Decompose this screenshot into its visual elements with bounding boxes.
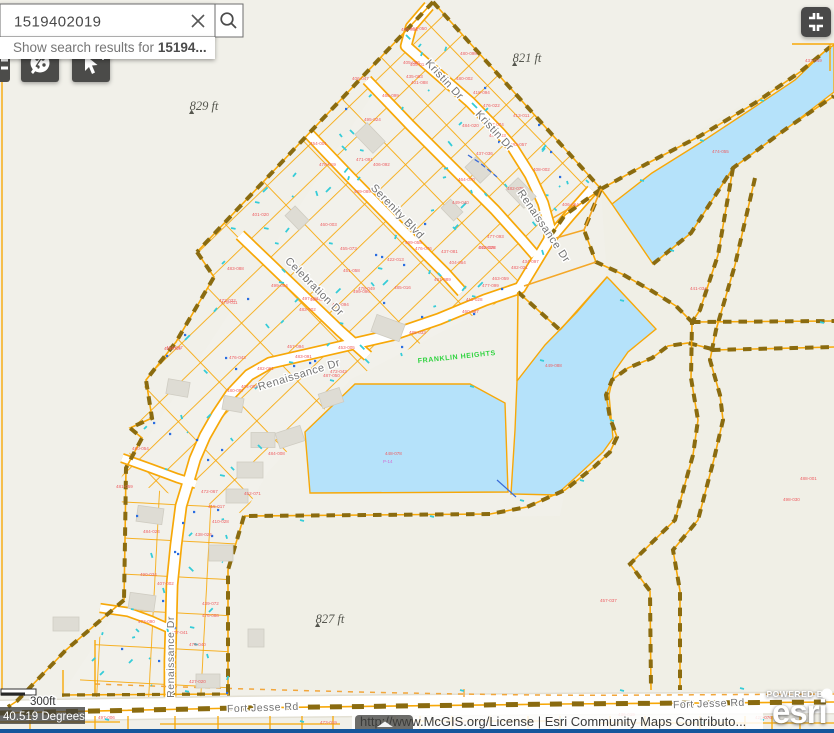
svg-text:406-092: 406-092 bbox=[373, 162, 390, 167]
svg-text:P-14: P-14 bbox=[383, 459, 393, 464]
svg-text:406-064: 406-064 bbox=[562, 202, 579, 207]
svg-text:827 ft: 827 ft bbox=[316, 612, 345, 626]
svg-text:449-040: 449-040 bbox=[452, 200, 469, 205]
svg-text:460-003: 460-003 bbox=[320, 222, 337, 227]
svg-text:474-055: 474-055 bbox=[712, 149, 729, 154]
svg-text:485-016: 485-016 bbox=[394, 285, 411, 290]
svg-text:404-054: 404-054 bbox=[449, 260, 466, 265]
svg-text:418-094: 418-094 bbox=[473, 90, 490, 95]
svg-text:437-081: 437-081 bbox=[441, 249, 458, 254]
svg-text:Fort Jesse Rd: Fort Jesse Rd bbox=[227, 701, 299, 716]
svg-text:451-058: 451-058 bbox=[343, 268, 360, 273]
svg-text:453-005: 453-005 bbox=[338, 345, 355, 350]
svg-text:476-040: 476-040 bbox=[189, 642, 206, 647]
svg-text:481-059: 481-059 bbox=[116, 484, 133, 489]
svg-text:404-002: 404-002 bbox=[241, 384, 258, 389]
svg-text:455-073: 455-073 bbox=[340, 246, 357, 251]
svg-text:477-093: 477-093 bbox=[487, 234, 504, 239]
svg-text:401-020: 401-020 bbox=[252, 212, 269, 217]
svg-text:472-067: 472-067 bbox=[201, 489, 218, 494]
svg-text:300ft: 300ft bbox=[30, 696, 56, 708]
svg-text:Renaissance Dr: Renaissance Dr bbox=[165, 616, 177, 698]
svg-text:484-008: 484-008 bbox=[268, 451, 285, 456]
svg-text:488-001: 488-001 bbox=[800, 476, 817, 481]
svg-text:476-088: 476-088 bbox=[202, 613, 219, 618]
svg-text:460-099: 460-099 bbox=[382, 93, 399, 98]
svg-text:463-059: 463-059 bbox=[492, 276, 509, 281]
svg-text:435-093: 435-093 bbox=[406, 74, 423, 79]
svg-text:483-088: 483-088 bbox=[227, 266, 244, 271]
svg-text:495-024: 495-024 bbox=[364, 117, 381, 122]
svg-text:40.519 Degrees: 40.519 Degrees bbox=[3, 711, 85, 723]
svg-text:407-002: 407-002 bbox=[157, 581, 174, 586]
svg-text:476-043: 476-043 bbox=[229, 355, 246, 360]
svg-text:452-071: 452-071 bbox=[244, 491, 261, 496]
svg-text:497-006: 497-006 bbox=[98, 715, 115, 720]
svg-text:461-050: 461-050 bbox=[410, 26, 427, 31]
svg-text:438-024: 438-024 bbox=[195, 532, 212, 537]
svg-text:http://www.McGIS.org/License |: http://www.McGIS.org/License | Esri Comm… bbox=[360, 714, 746, 729]
svg-text:427-020: 427-020 bbox=[189, 679, 206, 684]
svg-text:448-078: 448-078 bbox=[385, 451, 402, 456]
svg-text:484-024: 484-024 bbox=[143, 529, 160, 534]
svg-text:411-028: 411-028 bbox=[466, 297, 483, 302]
svg-text:476-022: 476-022 bbox=[483, 103, 500, 108]
svg-text:454-001: 454-001 bbox=[310, 141, 327, 146]
svg-text:esri: esri bbox=[772, 693, 827, 730]
svg-text:478-019: 478-019 bbox=[319, 162, 336, 167]
svg-text:484-020: 484-020 bbox=[462, 123, 479, 128]
svg-text:480-002: 480-002 bbox=[456, 76, 473, 81]
svg-text:464-070: 464-070 bbox=[458, 177, 475, 182]
svg-text:Fort Jesse Rd: Fort Jesse Rd bbox=[673, 697, 745, 712]
svg-text:473-019: 473-019 bbox=[320, 720, 337, 725]
svg-text:449-088: 449-088 bbox=[545, 363, 562, 368]
svg-text:401-088: 401-088 bbox=[411, 80, 428, 85]
svg-text:471-091: 471-091 bbox=[356, 157, 373, 162]
svg-text:441-034: 441-034 bbox=[690, 286, 707, 291]
svg-text:Show search results for 15194.: Show search results for 15194... bbox=[13, 40, 207, 55]
svg-text:1519402019: 1519402019 bbox=[14, 14, 101, 31]
svg-text:422-013: 422-013 bbox=[387, 257, 404, 262]
svg-text:483-002: 483-002 bbox=[299, 307, 316, 312]
svg-text:476-076: 476-076 bbox=[415, 246, 432, 251]
svg-text:829 ft: 829 ft bbox=[190, 99, 219, 113]
svg-text:477-099: 477-099 bbox=[482, 283, 499, 288]
svg-text:473-090: 473-090 bbox=[138, 619, 155, 624]
svg-text:437-036: 437-036 bbox=[476, 151, 493, 156]
svg-text:499-054: 499-054 bbox=[271, 283, 288, 288]
svg-text:479-011: 479-011 bbox=[221, 300, 238, 305]
svg-text:439-072: 439-072 bbox=[202, 601, 219, 606]
svg-text:457-094: 457-094 bbox=[287, 344, 304, 349]
svg-text:491-089: 491-089 bbox=[434, 277, 451, 282]
svg-text:431-049: 431-049 bbox=[805, 58, 822, 63]
svg-text:490-034: 490-034 bbox=[140, 572, 157, 577]
svg-text:434-097: 434-097 bbox=[522, 259, 539, 264]
svg-text:410-028: 410-028 bbox=[212, 519, 229, 524]
svg-text:457-037: 457-037 bbox=[600, 598, 617, 603]
svg-text:482-061: 482-061 bbox=[257, 366, 274, 371]
svg-text:415-017: 415-017 bbox=[208, 504, 225, 509]
svg-text:480-098: 480-098 bbox=[460, 51, 477, 56]
svg-text:499-096: 499-096 bbox=[353, 289, 370, 294]
svg-text:480-054: 480-054 bbox=[132, 446, 149, 451]
svg-text:414-047: 414-047 bbox=[166, 345, 183, 350]
svg-text:406-047: 406-047 bbox=[352, 76, 369, 81]
svg-text:413-011: 413-011 bbox=[513, 113, 530, 118]
svg-text:498-030: 498-030 bbox=[783, 497, 800, 502]
svg-text:483-091: 483-091 bbox=[295, 354, 312, 359]
svg-text:821 ft: 821 ft bbox=[513, 51, 542, 65]
svg-text:408-002: 408-002 bbox=[533, 167, 550, 172]
svg-text:485-033: 485-033 bbox=[409, 330, 426, 335]
svg-text:482-021: 482-021 bbox=[511, 265, 528, 270]
svg-text:499-058: 499-058 bbox=[405, 240, 422, 245]
svg-text:460-087: 460-087 bbox=[462, 309, 479, 314]
svg-text:462-078: 462-078 bbox=[479, 245, 496, 250]
